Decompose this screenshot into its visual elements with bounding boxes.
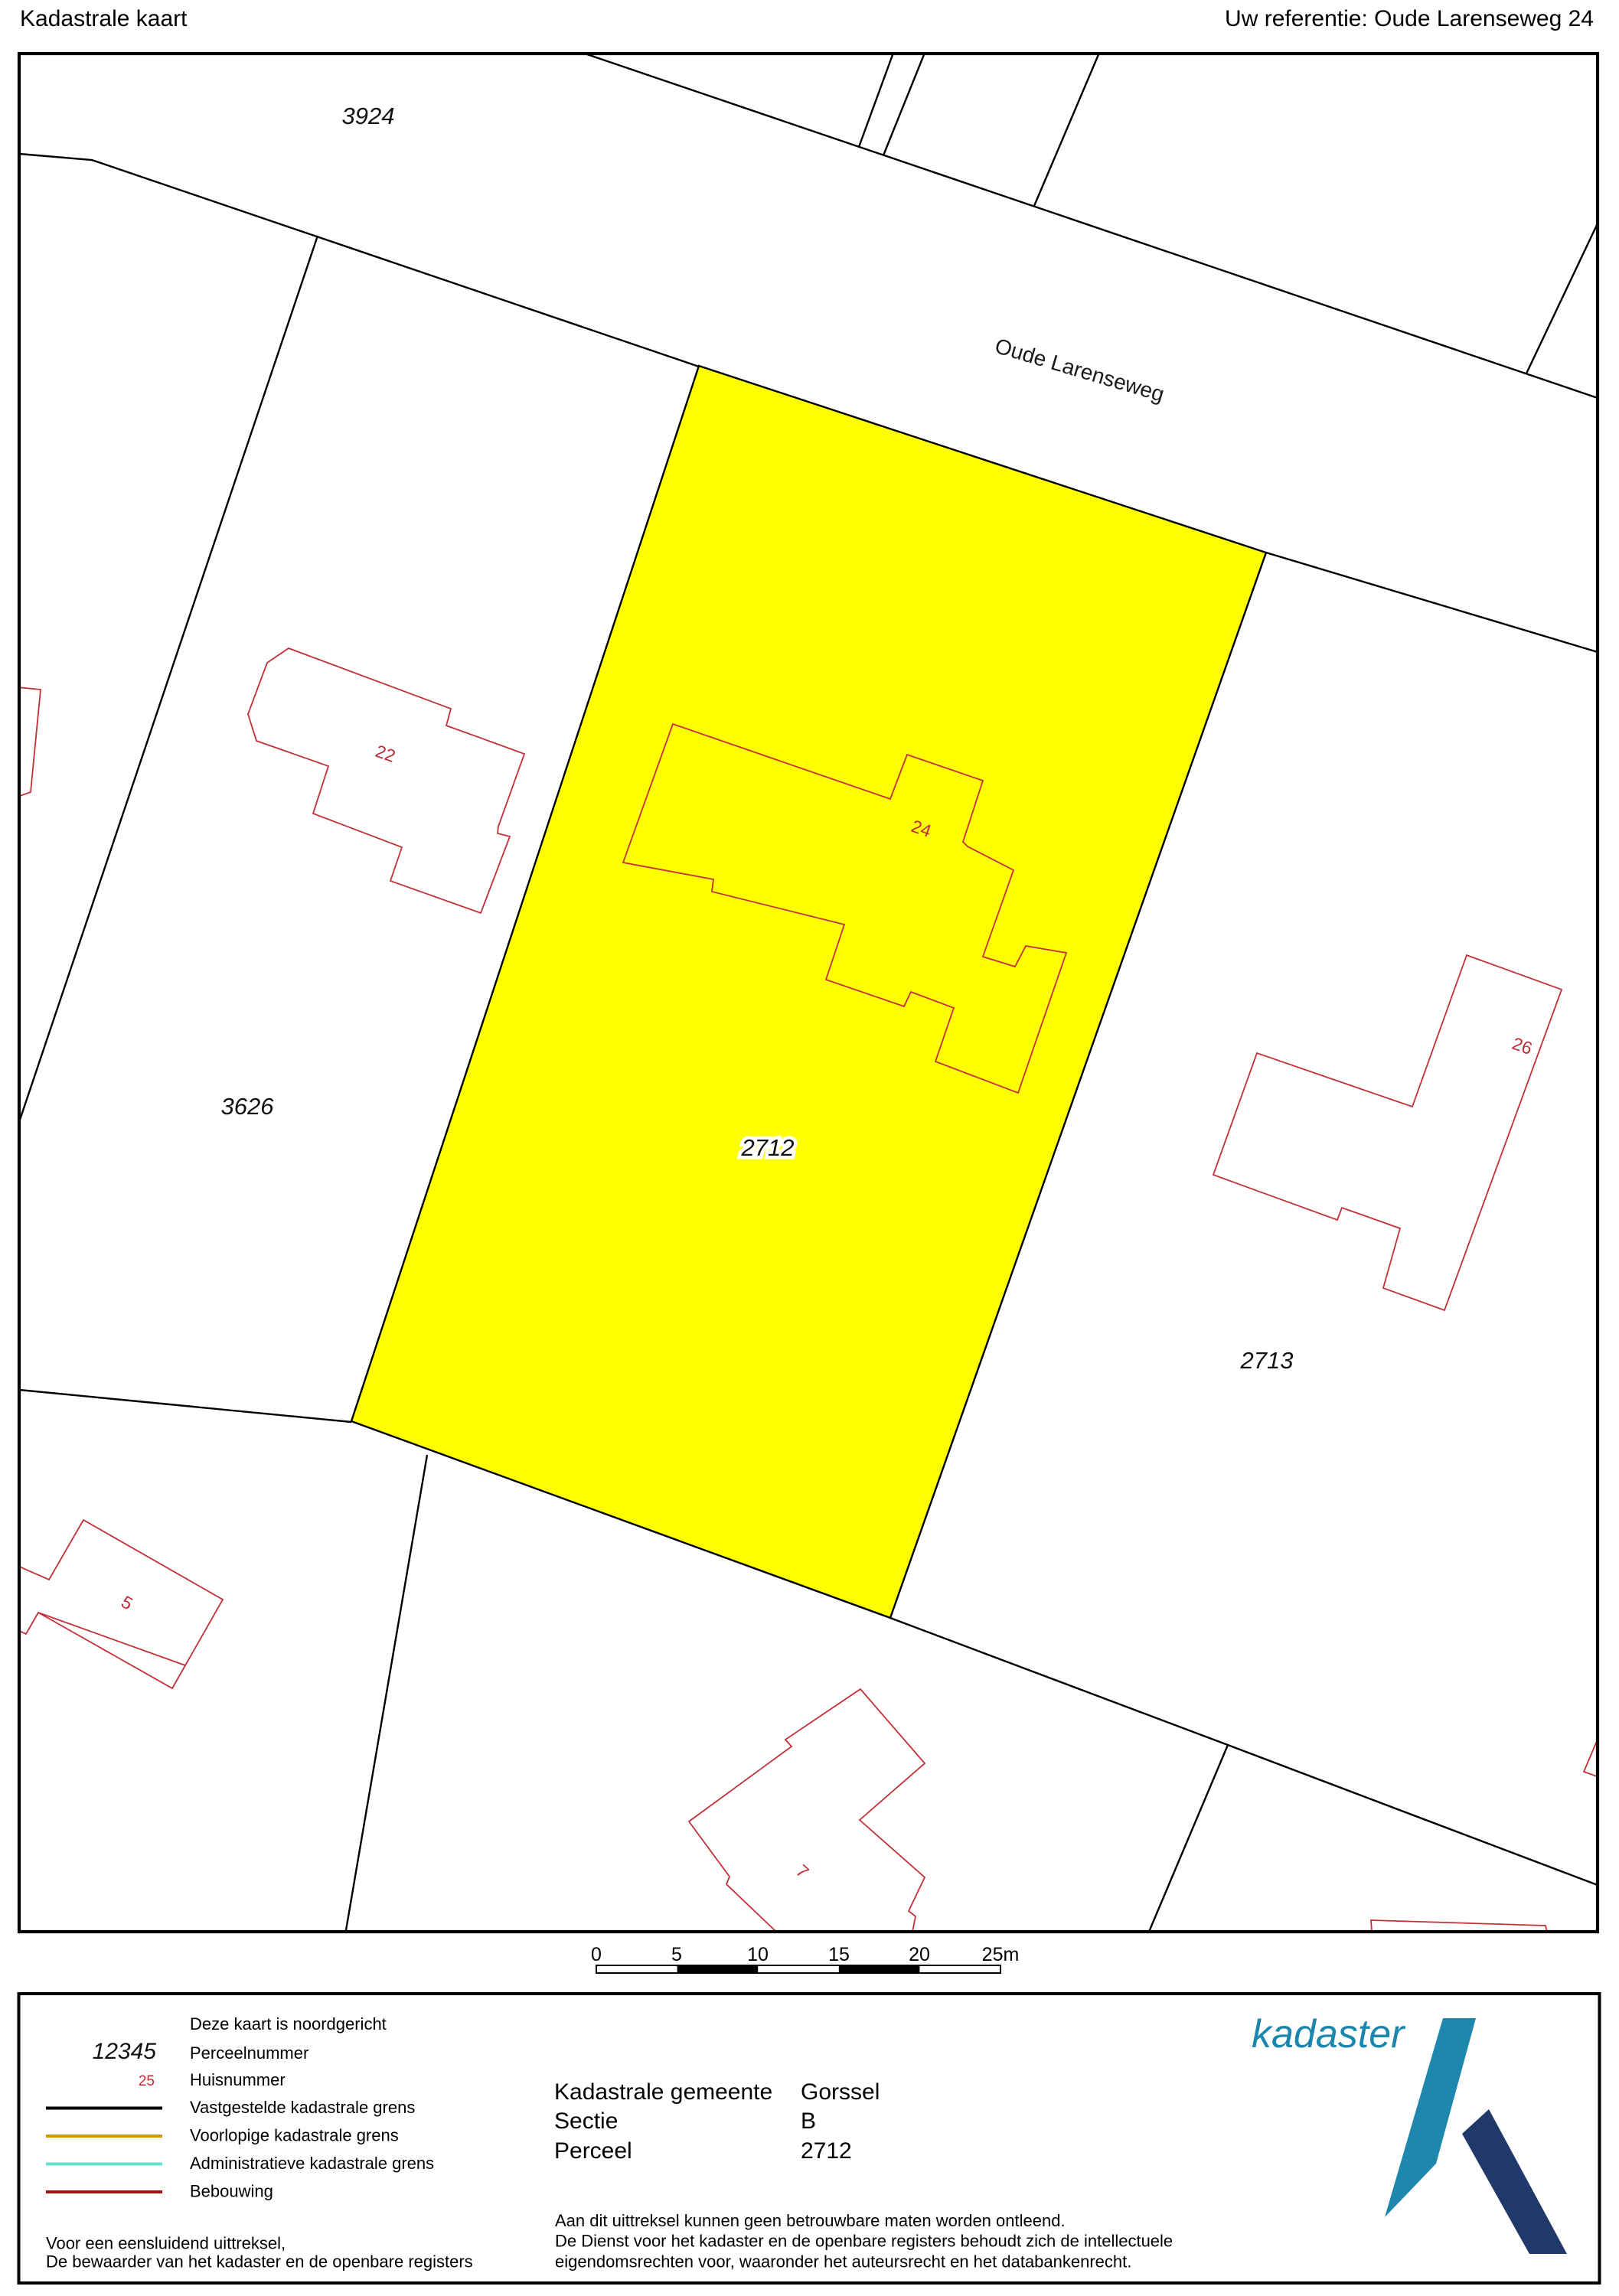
svg-text:0: 0	[591, 1944, 602, 1965]
svg-text:eigendomsrechten voor, waarond: eigendomsrechten voor, waaronder het aut…	[555, 2252, 1131, 2272]
svg-text:Gorssel: Gorssel	[801, 2079, 880, 2105]
svg-text:2712: 2712	[801, 2138, 852, 2164]
svg-text:Kadastrale gemeente: Kadastrale gemeente	[554, 2079, 772, 2105]
svg-text:2712: 2712	[741, 1134, 795, 1161]
svg-text:Uw referentie: Oude Larenseweg: Uw referentie: Oude Larenseweg 24	[1225, 6, 1594, 31]
svg-text:26: 26	[1510, 1033, 1535, 1058]
svg-text:3924: 3924	[342, 103, 395, 129]
svg-text:B: B	[801, 2108, 816, 2134]
svg-text:Aan dit uittreksel kunnen geen: Aan dit uittreksel kunnen geen betrouwba…	[555, 2211, 1066, 2230]
svg-text:12345: 12345	[93, 2039, 157, 2064]
svg-text:kadaster: kadaster	[1252, 2012, 1406, 2056]
svg-text:Bebouwing: Bebouwing	[190, 2182, 273, 2201]
svg-text:De Dienst voor het kadaster en: De Dienst voor het kadaster en de openba…	[555, 2232, 1173, 2251]
svg-text:De bewaarder van het kadaster: De bewaarder van het kadaster en de open…	[46, 2252, 473, 2272]
svg-text:25: 25	[139, 2073, 155, 2089]
svg-text:Perceelnummer: Perceelnummer	[190, 2043, 308, 2063]
svg-text:Kadastrale kaart: Kadastrale kaart	[20, 6, 188, 31]
svg-text:Voorlopige kadastrale grens: Voorlopige kadastrale grens	[190, 2126, 399, 2145]
svg-text:Vastgestelde kadastrale grens: Vastgestelde kadastrale grens	[190, 2098, 415, 2117]
svg-text:25m: 25m	[982, 1944, 1020, 1965]
svg-text:Perceel: Perceel	[554, 2138, 632, 2164]
svg-text:Deze kaart is noordgericht: Deze kaart is noordgericht	[190, 2014, 387, 2033]
svg-text:5: 5	[671, 1944, 682, 1965]
svg-text:Huisnummer: Huisnummer	[190, 2070, 286, 2089]
svg-text:Oude Larenseweg: Oude Larenseweg	[992, 334, 1167, 406]
svg-text:20: 20	[909, 1944, 930, 1965]
svg-text:5: 5	[118, 1592, 136, 1614]
svg-text:15: 15	[828, 1944, 850, 1965]
svg-text:Administratieve kadastrale gre: Administratieve kadastrale grens	[190, 2154, 434, 2173]
svg-text:2713: 2713	[1240, 1347, 1294, 1374]
svg-text:10: 10	[747, 1944, 769, 1965]
svg-text:3626: 3626	[221, 1093, 275, 1120]
svg-text:7: 7	[792, 1861, 813, 1882]
svg-text:Voor een eensluidend uittrekse: Voor een eensluidend uittreksel,	[46, 2234, 286, 2253]
svg-text:Sectie: Sectie	[554, 2108, 618, 2134]
svg-text:22: 22	[373, 741, 398, 766]
